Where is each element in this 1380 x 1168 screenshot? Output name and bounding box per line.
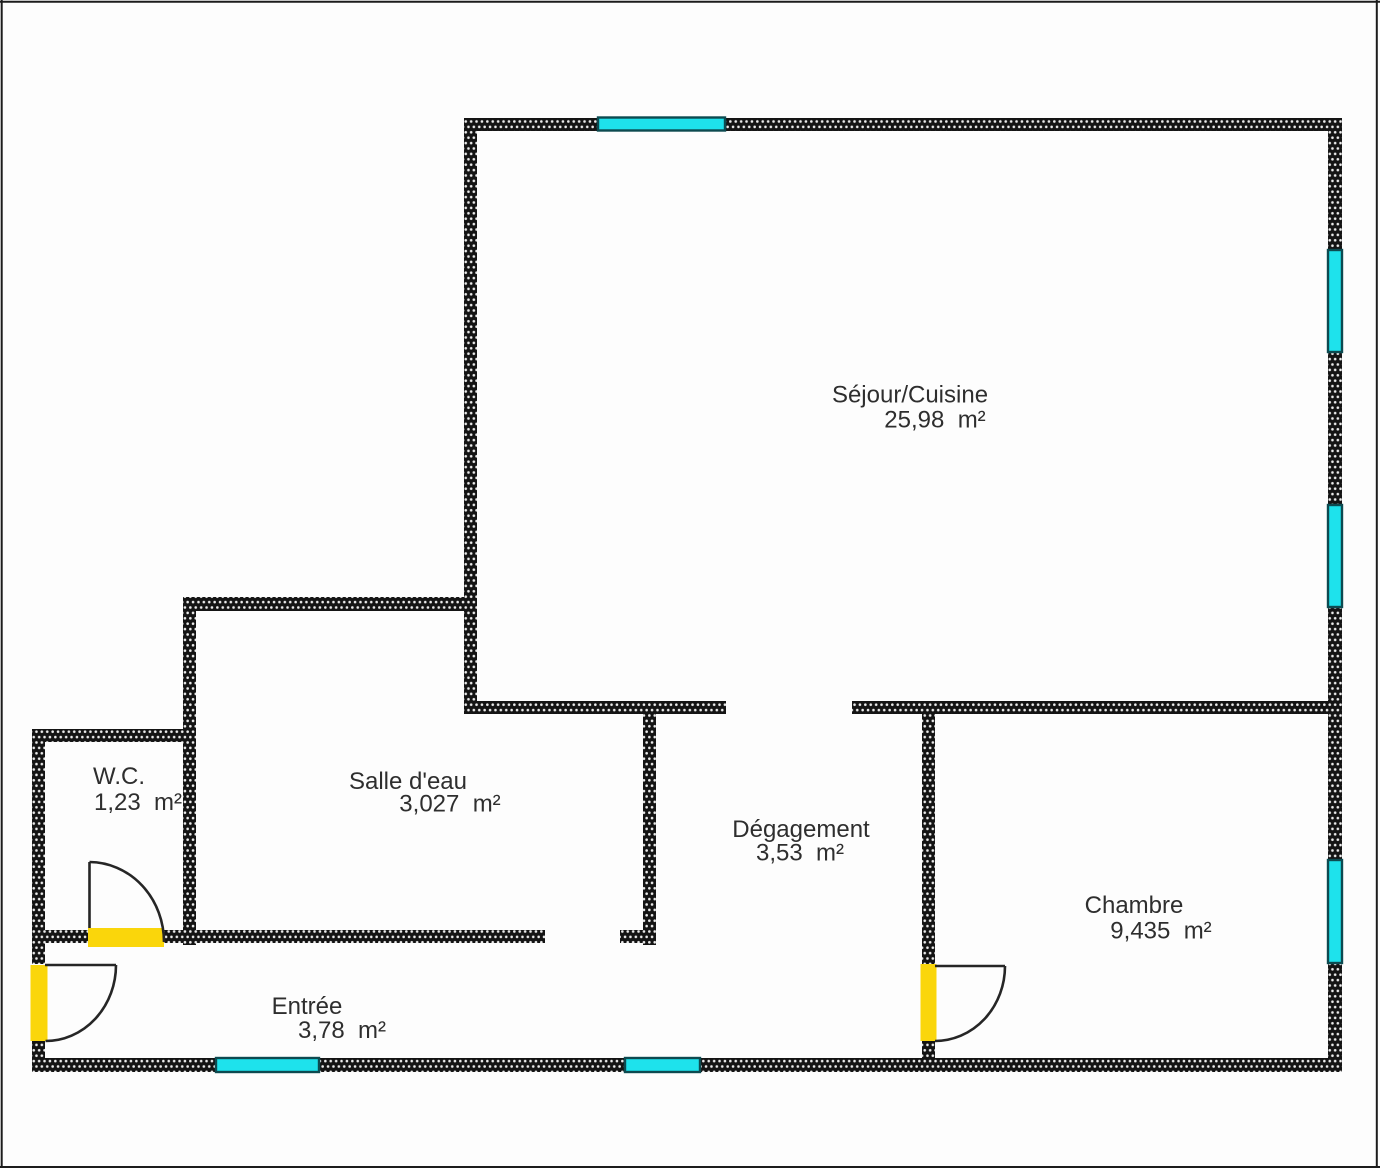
svg-text:1,23 m²: 1,23 m² bbox=[94, 789, 182, 816]
svg-text:Entrée: Entrée bbox=[272, 993, 343, 1020]
svg-text:Séjour/Cuisine: Séjour/Cuisine bbox=[832, 382, 988, 409]
svg-text:W.C.: W.C. bbox=[93, 763, 145, 790]
svg-text:9,435 m²: 9,435 m² bbox=[1110, 918, 1211, 945]
svg-text:Chambre: Chambre bbox=[1085, 892, 1184, 919]
svg-text:3,78 m²: 3,78 m² bbox=[298, 1017, 386, 1044]
svg-text:25,98 m²: 25,98 m² bbox=[884, 407, 985, 434]
svg-text:3,53 m²: 3,53 m² bbox=[756, 840, 844, 867]
svg-text:3,027 m²: 3,027 m² bbox=[399, 791, 500, 818]
